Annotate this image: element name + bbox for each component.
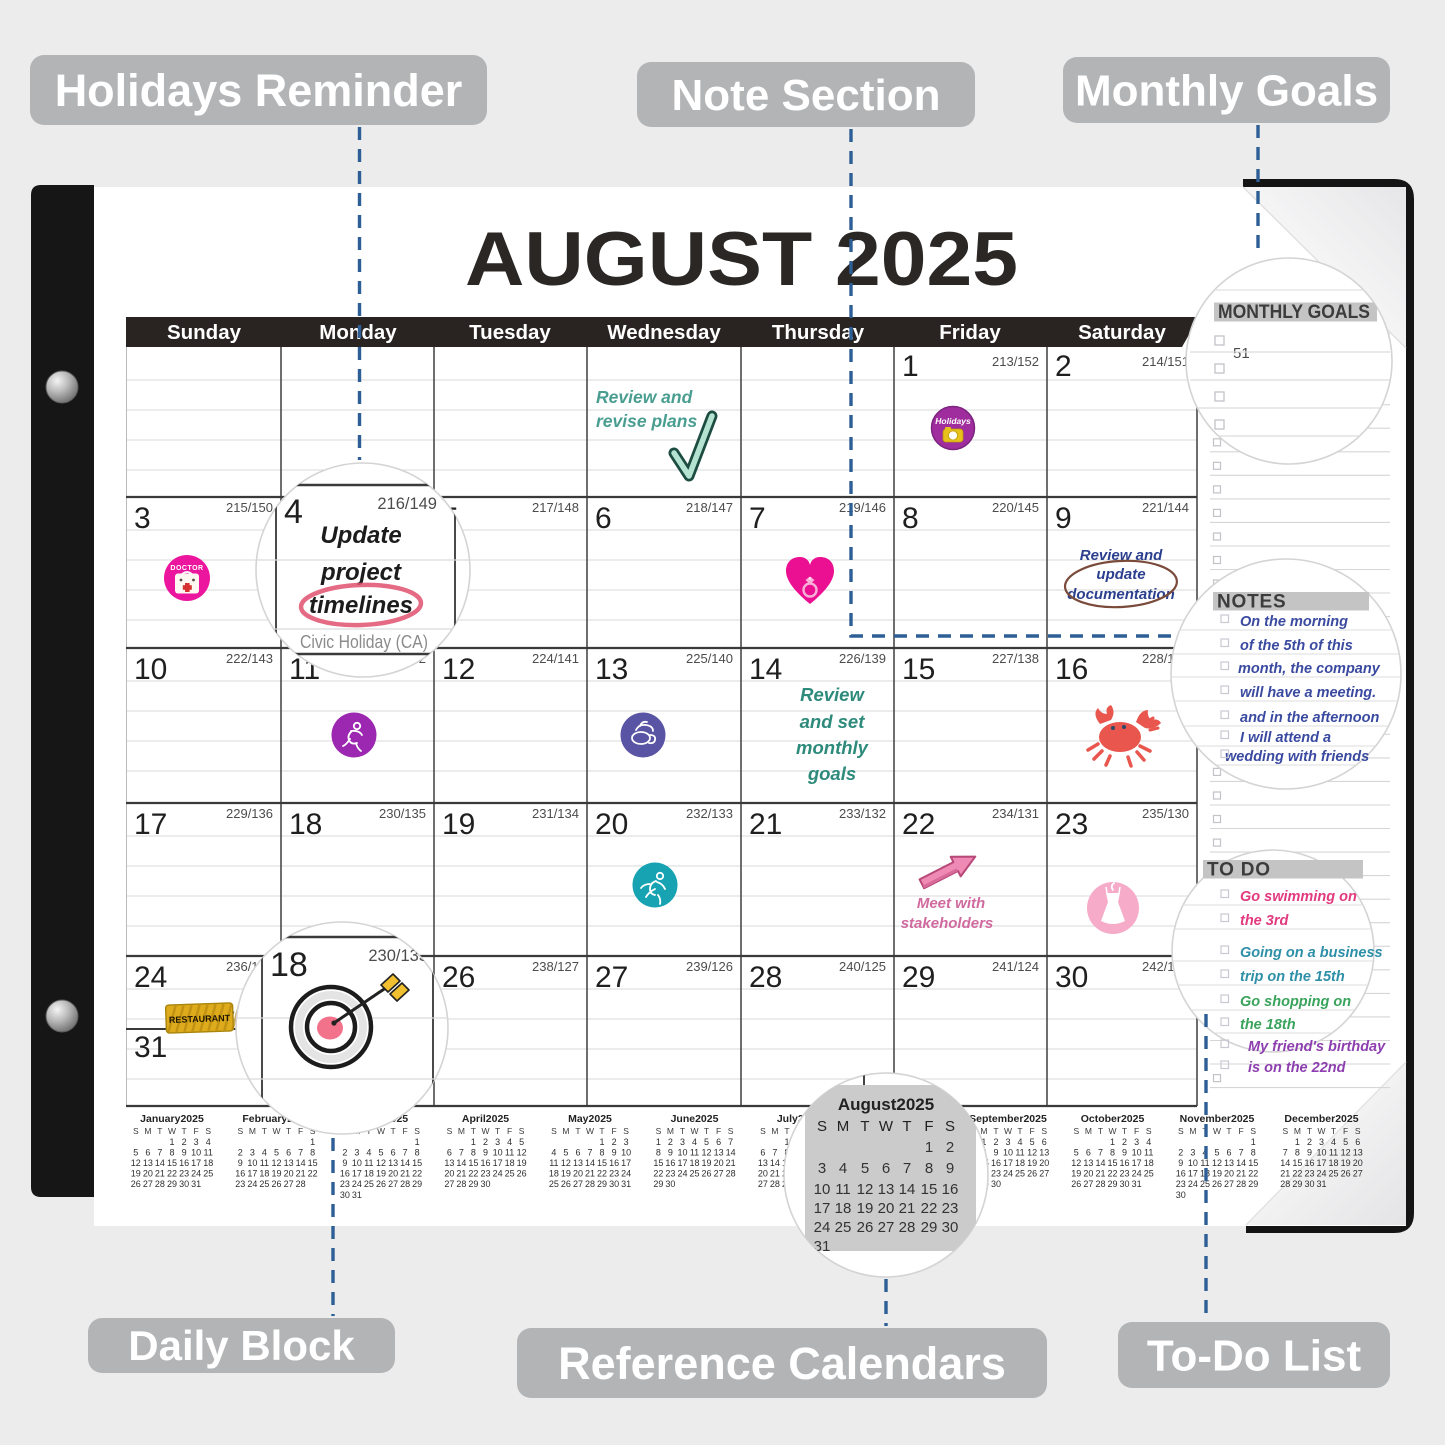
svg-text:April2025: April2025: [462, 1113, 509, 1125]
svg-text:W: W: [168, 1126, 176, 1136]
svg-text:F: F: [402, 1126, 407, 1136]
svg-text:W: W: [879, 1118, 894, 1135]
svg-text:wedding with friends: wedding with friends: [1225, 749, 1369, 765]
svg-text:Note Section: Note Section: [672, 71, 941, 120]
svg-text:27: 27: [714, 1169, 724, 1179]
svg-text:23: 23: [1304, 1169, 1314, 1179]
svg-text:14: 14: [1280, 1158, 1290, 1168]
svg-text:29: 29: [597, 1179, 607, 1189]
svg-text:7: 7: [157, 1147, 162, 1157]
svg-text:5: 5: [1214, 1147, 1219, 1157]
svg-text:T: T: [704, 1126, 709, 1136]
svg-text:10: 10: [352, 1158, 362, 1168]
svg-text:27: 27: [1039, 1169, 1049, 1179]
svg-text:13: 13: [284, 1158, 294, 1168]
svg-text:16: 16: [609, 1158, 619, 1168]
svg-text:4: 4: [366, 1147, 371, 1157]
svg-text:10: 10: [1132, 1147, 1142, 1157]
svg-text:6: 6: [1226, 1147, 1231, 1157]
svg-text:11: 11: [1015, 1147, 1024, 1157]
svg-text:14: 14: [456, 1158, 466, 1168]
svg-text:11: 11: [835, 1181, 851, 1198]
svg-text:21: 21: [770, 1169, 780, 1179]
svg-text:the 3rd: the 3rd: [1240, 913, 1289, 929]
svg-text:8: 8: [925, 1160, 933, 1177]
svg-text:8: 8: [415, 1147, 420, 1157]
svg-text:and set: and set: [800, 711, 866, 732]
svg-text:MONTHLY GOALS: MONTHLY GOALS: [1218, 302, 1370, 323]
svg-text:215/150: 215/150: [226, 500, 273, 515]
svg-text:2: 2: [1055, 350, 1072, 383]
svg-text:W: W: [586, 1126, 594, 1136]
svg-text:4: 4: [507, 1137, 512, 1147]
svg-text:T: T: [784, 1126, 789, 1136]
svg-text:18: 18: [270, 946, 308, 984]
svg-text:3: 3: [194, 1137, 199, 1147]
svg-text:21: 21: [749, 808, 782, 841]
svg-text:12: 12: [857, 1181, 874, 1198]
svg-text:F: F: [1029, 1126, 1034, 1136]
svg-text:29: 29: [468, 1179, 478, 1189]
svg-text:18: 18: [203, 1158, 213, 1168]
svg-text:T: T: [575, 1126, 580, 1136]
svg-text:9: 9: [1122, 1147, 1127, 1157]
svg-text:9: 9: [342, 1158, 347, 1168]
svg-text:5: 5: [133, 1147, 138, 1157]
svg-text:9: 9: [668, 1147, 673, 1157]
svg-text:My friend's birthday: My friend's birthday: [1248, 1039, 1386, 1055]
svg-text:13: 13: [1039, 1147, 1049, 1157]
svg-text:September2025: September2025: [969, 1113, 1047, 1125]
svg-text:S: S: [1073, 1126, 1079, 1136]
svg-text:30: 30: [1176, 1190, 1186, 1200]
svg-text:10: 10: [1188, 1158, 1198, 1168]
svg-text:232/133: 232/133: [686, 806, 733, 821]
svg-text:9: 9: [1055, 502, 1072, 535]
svg-text:9: 9: [1178, 1158, 1183, 1168]
svg-text:7: 7: [587, 1147, 592, 1157]
svg-text:240/125: 240/125: [839, 959, 886, 974]
svg-text:29: 29: [902, 961, 935, 994]
svg-text:3: 3: [624, 1137, 629, 1147]
svg-text:Tuesday: Tuesday: [469, 321, 551, 344]
svg-text:Wednesday: Wednesday: [607, 321, 721, 344]
svg-text:13: 13: [444, 1158, 454, 1168]
svg-text:M: M: [249, 1126, 256, 1136]
svg-text:24: 24: [677, 1169, 687, 1179]
svg-text:24: 24: [814, 1219, 831, 1236]
svg-text:22: 22: [597, 1169, 607, 1179]
svg-text:16: 16: [340, 1169, 350, 1179]
svg-text:20: 20: [143, 1169, 153, 1179]
svg-text:29: 29: [1107, 1179, 1117, 1189]
svg-text:17: 17: [814, 1200, 831, 1217]
svg-text:16: 16: [1119, 1158, 1129, 1168]
svg-text:27: 27: [284, 1179, 294, 1189]
svg-text:11: 11: [1200, 1158, 1209, 1168]
svg-text:24: 24: [493, 1169, 503, 1179]
svg-text:25: 25: [689, 1169, 699, 1179]
svg-text:Meet with: Meet with: [917, 895, 985, 912]
svg-text:31: 31: [134, 1031, 167, 1064]
svg-text:20: 20: [1039, 1158, 1049, 1168]
svg-text:18: 18: [835, 1200, 852, 1217]
svg-text:S: S: [945, 1118, 955, 1135]
svg-text:Civic Holiday (CA): Civic Holiday (CA): [300, 631, 428, 652]
svg-text:T: T: [495, 1126, 500, 1136]
svg-text:6: 6: [716, 1137, 721, 1147]
svg-text:update: update: [1096, 566, 1145, 583]
svg-text:6: 6: [1355, 1137, 1360, 1147]
svg-text:28: 28: [296, 1179, 306, 1189]
svg-text:29: 29: [167, 1179, 177, 1189]
svg-text:26: 26: [271, 1179, 281, 1189]
svg-text:F: F: [1343, 1126, 1348, 1136]
svg-text:To-Do List: To-Do List: [1147, 1331, 1362, 1380]
svg-text:21: 21: [899, 1200, 916, 1217]
svg-text:21: 21: [1236, 1169, 1246, 1179]
svg-text:23: 23: [665, 1169, 675, 1179]
svg-text:214/151: 214/151: [1142, 354, 1189, 369]
svg-text:25: 25: [1144, 1169, 1154, 1179]
svg-text:26: 26: [517, 1169, 527, 1179]
svg-text:TO DO: TO DO: [1207, 860, 1271, 881]
svg-text:W: W: [1108, 1126, 1116, 1136]
svg-text:15: 15: [921, 1181, 938, 1198]
svg-text:28: 28: [749, 961, 782, 994]
svg-text:27: 27: [573, 1179, 583, 1189]
svg-text:T: T: [181, 1126, 186, 1136]
svg-text:9: 9: [612, 1147, 617, 1157]
svg-text:17: 17: [134, 808, 167, 841]
svg-text:22: 22: [921, 1200, 938, 1217]
svg-text:30: 30: [1055, 961, 1088, 994]
svg-text:6: 6: [286, 1147, 291, 1157]
svg-text:8: 8: [1295, 1147, 1300, 1157]
svg-text:24: 24: [352, 1179, 362, 1189]
svg-text:27: 27: [143, 1179, 153, 1189]
svg-text:Saturday: Saturday: [1078, 321, 1166, 344]
svg-text:225/140: 225/140: [686, 651, 733, 666]
svg-text:S: S: [728, 1126, 734, 1136]
svg-text:22: 22: [1292, 1169, 1302, 1179]
svg-text:Holidays Reminder: Holidays Reminder: [55, 65, 463, 116]
svg-text:7: 7: [403, 1147, 408, 1157]
svg-text:Friday: Friday: [939, 321, 1001, 344]
svg-text:12: 12: [1027, 1147, 1037, 1157]
svg-text:25: 25: [835, 1219, 852, 1236]
svg-text:16: 16: [1304, 1158, 1314, 1168]
svg-text:25: 25: [505, 1169, 515, 1179]
svg-text:9: 9: [182, 1147, 187, 1157]
svg-text:T: T: [1122, 1126, 1127, 1136]
svg-text:8: 8: [1251, 1147, 1256, 1157]
svg-text:22: 22: [902, 808, 935, 841]
svg-text:11: 11: [1144, 1147, 1153, 1157]
svg-text:15: 15: [1248, 1158, 1258, 1168]
svg-text:17: 17: [677, 1158, 687, 1168]
svg-text:28: 28: [770, 1179, 780, 1189]
svg-text:M: M: [1189, 1126, 1196, 1136]
svg-text:M: M: [980, 1126, 987, 1136]
svg-text:31: 31: [621, 1179, 631, 1189]
svg-text:14: 14: [155, 1158, 165, 1168]
svg-text:24: 24: [1003, 1169, 1013, 1179]
svg-text:29: 29: [1248, 1179, 1258, 1189]
svg-text:Sunday: Sunday: [167, 321, 242, 344]
svg-text:229/136: 229/136: [226, 806, 273, 821]
svg-text:10: 10: [493, 1147, 503, 1157]
svg-text:16: 16: [665, 1158, 675, 1168]
svg-text:1: 1: [656, 1137, 661, 1147]
svg-text:5: 5: [1074, 1147, 1079, 1157]
svg-text:18: 18: [1328, 1158, 1338, 1168]
svg-text:10: 10: [621, 1147, 631, 1157]
svg-text:28: 28: [899, 1219, 916, 1236]
svg-text:241/124: 241/124: [992, 959, 1039, 974]
svg-text:26: 26: [857, 1219, 874, 1236]
svg-text:monthly: monthly: [796, 737, 870, 758]
svg-text:221/144: 221/144: [1142, 500, 1189, 515]
svg-text:4: 4: [551, 1147, 556, 1157]
svg-text:26: 26: [1341, 1169, 1351, 1179]
svg-text:20: 20: [573, 1169, 583, 1179]
svg-text:21: 21: [400, 1169, 410, 1179]
svg-text:15: 15: [468, 1158, 478, 1168]
svg-text:4: 4: [206, 1137, 211, 1147]
svg-text:20: 20: [1083, 1169, 1093, 1179]
svg-text:10: 10: [1316, 1147, 1326, 1157]
svg-text:9: 9: [993, 1147, 998, 1157]
svg-text:27: 27: [1353, 1169, 1363, 1179]
svg-text:18: 18: [259, 1169, 269, 1179]
svg-text:1: 1: [925, 1139, 933, 1156]
svg-text:7: 7: [459, 1147, 464, 1157]
svg-text:227/138: 227/138: [992, 651, 1039, 666]
svg-text:23: 23: [235, 1179, 245, 1189]
svg-text:14: 14: [296, 1158, 306, 1168]
svg-text:12: 12: [131, 1158, 141, 1168]
svg-text:27: 27: [758, 1179, 768, 1189]
svg-text:Go shopping on: Go shopping on: [1240, 994, 1351, 1010]
svg-text:7: 7: [1098, 1147, 1103, 1157]
svg-text:3: 3: [495, 1137, 500, 1147]
svg-text:24: 24: [1316, 1169, 1326, 1179]
svg-text:15: 15: [1107, 1158, 1117, 1168]
svg-text:20: 20: [1224, 1169, 1234, 1179]
svg-text:10: 10: [677, 1147, 687, 1157]
svg-text:21: 21: [1095, 1169, 1105, 1179]
svg-text:24: 24: [1132, 1169, 1142, 1179]
svg-text:S: S: [1146, 1126, 1152, 1136]
svg-text:2: 2: [1178, 1147, 1183, 1157]
svg-text:4: 4: [692, 1137, 697, 1147]
svg-text:20: 20: [388, 1169, 398, 1179]
svg-text:9: 9: [1307, 1147, 1312, 1157]
svg-text:11: 11: [260, 1158, 269, 1168]
svg-text:17: 17: [1316, 1158, 1326, 1168]
svg-text:S: S: [205, 1126, 211, 1136]
svg-text:T: T: [157, 1126, 162, 1136]
svg-text:15: 15: [653, 1158, 663, 1168]
svg-text:month, the company: month, the company: [1238, 661, 1381, 677]
svg-text:13: 13: [1224, 1158, 1234, 1168]
svg-text:5: 5: [1030, 1137, 1035, 1147]
svg-text:23: 23: [340, 1179, 350, 1189]
svg-text:27: 27: [878, 1219, 895, 1236]
svg-text:12: 12: [442, 653, 475, 686]
svg-text:26: 26: [442, 961, 475, 994]
svg-text:19: 19: [376, 1169, 386, 1179]
svg-text:T: T: [1226, 1126, 1231, 1136]
svg-text:S: S: [551, 1126, 557, 1136]
svg-text:14: 14: [1095, 1158, 1105, 1168]
svg-text:M: M: [837, 1118, 850, 1135]
svg-text:23: 23: [942, 1200, 959, 1217]
svg-text:F: F: [716, 1126, 721, 1136]
svg-text:23: 23: [1176, 1179, 1186, 1189]
svg-text:22: 22: [412, 1169, 422, 1179]
svg-text:17: 17: [352, 1169, 362, 1179]
svg-text:5: 5: [861, 1160, 869, 1177]
svg-text:8: 8: [599, 1147, 604, 1157]
svg-text:8: 8: [1110, 1147, 1115, 1157]
svg-text:217/148: 217/148: [532, 500, 579, 515]
svg-text:1: 1: [1251, 1137, 1256, 1147]
svg-text:18: 18: [1144, 1158, 1154, 1168]
svg-text:M: M: [771, 1126, 778, 1136]
svg-text:13: 13: [388, 1158, 398, 1168]
svg-text:T: T: [599, 1126, 604, 1136]
svg-text:T: T: [1331, 1126, 1336, 1136]
svg-text:S: S: [519, 1126, 525, 1136]
svg-text:23: 23: [179, 1169, 189, 1179]
svg-text:6: 6: [595, 502, 612, 535]
svg-text:6: 6: [760, 1147, 765, 1157]
svg-text:M: M: [458, 1126, 465, 1136]
svg-text:26: 26: [1027, 1169, 1037, 1179]
svg-text:17: 17: [1132, 1158, 1142, 1168]
svg-text:goals: goals: [807, 763, 856, 784]
svg-text:6: 6: [1086, 1147, 1091, 1157]
svg-text:23: 23: [609, 1169, 619, 1179]
svg-text:11: 11: [204, 1147, 213, 1157]
svg-text:18: 18: [689, 1158, 699, 1168]
svg-text:239/126: 239/126: [686, 959, 733, 974]
svg-text:216/149: 216/149: [377, 495, 437, 513]
svg-text:T: T: [1017, 1126, 1022, 1136]
svg-text:December2025: December2025: [1284, 1113, 1358, 1125]
svg-text:16: 16: [480, 1158, 490, 1168]
svg-text:231/134: 231/134: [532, 806, 579, 821]
svg-text:5: 5: [1343, 1137, 1348, 1147]
svg-text:T: T: [286, 1126, 291, 1136]
svg-text:21: 21: [726, 1158, 736, 1168]
svg-text:25: 25: [203, 1169, 213, 1179]
svg-text:4: 4: [1146, 1137, 1151, 1147]
svg-text:12: 12: [701, 1147, 711, 1157]
svg-text:10: 10: [1003, 1147, 1013, 1157]
svg-text:On the morning: On the morning: [1240, 614, 1348, 630]
svg-text:14: 14: [1236, 1158, 1246, 1168]
svg-text:16: 16: [235, 1169, 245, 1179]
svg-text:Daily Block: Daily Block: [128, 1322, 355, 1369]
svg-text:29: 29: [921, 1219, 938, 1236]
svg-text:the 18th: the 18th: [1240, 1017, 1296, 1033]
svg-text:226/139: 226/139: [839, 651, 886, 666]
svg-text:S: S: [623, 1126, 629, 1136]
svg-text:24: 24: [134, 961, 167, 994]
svg-text:29: 29: [412, 1179, 422, 1189]
svg-text:20: 20: [444, 1169, 454, 1179]
svg-text:20: 20: [758, 1169, 768, 1179]
svg-text:3: 3: [680, 1137, 685, 1147]
svg-text:Go swimming on: Go swimming on: [1240, 889, 1357, 905]
svg-text:revise plans: revise plans: [596, 411, 697, 431]
svg-text:30: 30: [179, 1179, 189, 1189]
svg-text:19: 19: [701, 1158, 711, 1168]
svg-text:June2025: June2025: [671, 1113, 719, 1125]
svg-text:15: 15: [412, 1158, 422, 1168]
svg-text:2: 2: [946, 1139, 954, 1156]
svg-text:14: 14: [749, 653, 782, 686]
svg-text:F: F: [507, 1126, 512, 1136]
svg-text:16: 16: [1055, 653, 1088, 686]
svg-text:19: 19: [442, 808, 475, 841]
svg-text:20: 20: [284, 1169, 294, 1179]
svg-text:20: 20: [595, 808, 628, 841]
svg-text:220/145: 220/145: [992, 500, 1039, 515]
svg-text:26: 26: [561, 1179, 571, 1189]
svg-text:213/152: 213/152: [992, 354, 1039, 369]
svg-text:24: 24: [247, 1179, 257, 1189]
svg-text:24: 24: [191, 1169, 201, 1179]
svg-text:13: 13: [1353, 1147, 1363, 1157]
svg-text:7: 7: [772, 1147, 777, 1157]
svg-text:28: 28: [1095, 1179, 1105, 1189]
svg-text:18: 18: [289, 808, 322, 841]
svg-text:W: W: [272, 1126, 280, 1136]
svg-text:S: S: [414, 1126, 420, 1136]
svg-text:25: 25: [259, 1179, 269, 1189]
svg-text:11: 11: [364, 1158, 373, 1168]
svg-text:T: T: [471, 1126, 476, 1136]
svg-text:31: 31: [191, 1179, 201, 1189]
svg-text:13: 13: [1083, 1158, 1093, 1168]
svg-text:17: 17: [1188, 1169, 1198, 1179]
svg-text:19: 19: [1341, 1158, 1351, 1168]
svg-text:25: 25: [1015, 1169, 1025, 1179]
svg-text:T: T: [993, 1126, 998, 1136]
svg-text:4: 4: [1017, 1137, 1022, 1147]
svg-text:10: 10: [247, 1158, 257, 1168]
svg-text:26: 26: [376, 1179, 386, 1189]
svg-text:20: 20: [1353, 1158, 1363, 1168]
svg-text:24: 24: [1188, 1179, 1198, 1189]
svg-text:11: 11: [549, 1158, 558, 1168]
svg-text:T: T: [1098, 1126, 1103, 1136]
svg-text:7: 7: [1239, 1147, 1244, 1157]
svg-text:W: W: [1213, 1126, 1221, 1136]
svg-text:14: 14: [400, 1158, 410, 1168]
svg-text:NOTES: NOTES: [1217, 592, 1286, 613]
svg-text:17: 17: [191, 1158, 201, 1168]
svg-text:S: S: [1250, 1126, 1256, 1136]
svg-text:M: M: [667, 1126, 674, 1136]
svg-text:21: 21: [585, 1169, 595, 1179]
svg-text:7: 7: [749, 502, 766, 535]
svg-text:16: 16: [179, 1158, 189, 1168]
